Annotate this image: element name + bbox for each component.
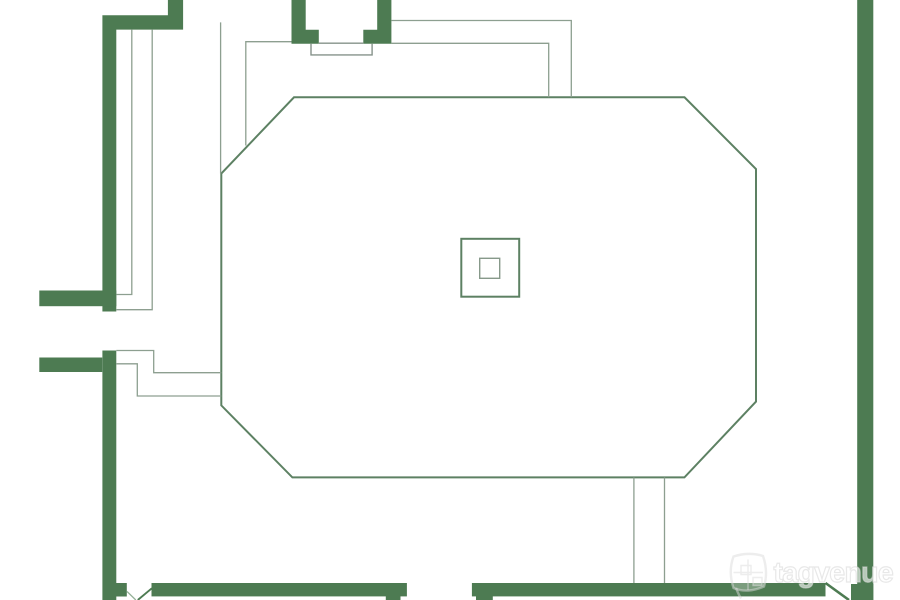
svg-text:tagvenue: tagvenue [774, 557, 894, 589]
